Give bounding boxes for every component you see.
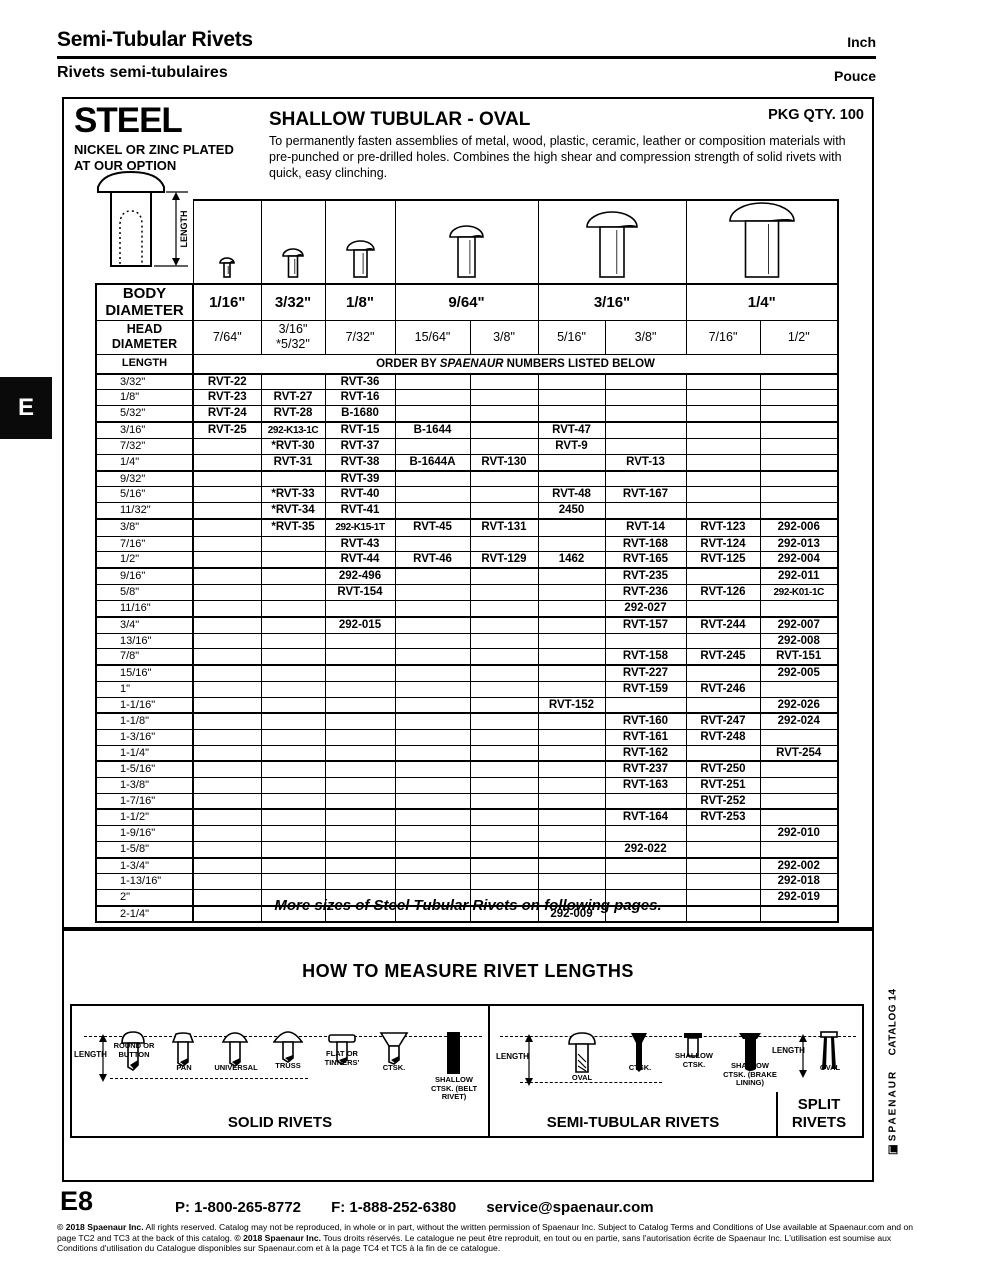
part-number-cell: RVT-25 [193,422,261,439]
order-note-prefix: ORDER BY [376,358,440,370]
part-number-cell: 292-006 [760,519,838,536]
empty-cell [470,487,538,503]
part-number-cell: 292-013 [760,536,838,552]
part-number-cell: RVT-31 [261,455,325,471]
rivet-pictogram-cell [325,200,395,284]
rivet-pictogram-cell [686,200,838,284]
empty-cell [760,374,838,390]
empty-cell [760,729,838,745]
rivet-pictogram-cell [193,200,261,284]
empty-cell [538,568,605,584]
empty-cell [193,471,261,487]
empty-cell [325,874,395,890]
head-diameter-value: 3/8" [605,320,686,354]
part-number-cell: 292-010 [760,826,838,842]
empty-cell [470,841,538,857]
length-cell: 7/8" [96,649,193,665]
empty-cell [605,793,686,809]
part-number-cell: *RVT-35 [261,519,325,536]
empty-cell [686,601,760,617]
empty-cell [605,471,686,487]
order-note: ORDER BY SPAENAUR NUMBERS LISTED BELOW [193,354,838,374]
length-cell: 1-5/16" [96,761,193,777]
part-number-cell: RVT-27 [261,390,325,406]
empty-cell [325,858,395,874]
body-diameter-row: BODY DIAMETER1/16"3/32"1/8"9/64"3/16"1/4… [96,284,838,320]
empty-cell [261,793,325,809]
part-number-cell: 292-002 [760,858,838,874]
part-number-cell: 292-K15-1T [325,519,395,536]
empty-cell [605,374,686,390]
package-qty: PKG QTY. 100 [768,107,864,123]
empty-cell [261,633,325,649]
table-row: 1"RVT-159RVT-246 [96,681,838,697]
empty-cell [193,681,261,697]
length-cell: 1-3/8" [96,778,193,794]
length-cell: 15/16" [96,665,193,681]
length-cell: 1-13/16" [96,874,193,890]
empty-cell [470,390,538,406]
empty-cell [760,390,838,406]
table-row: 11/16"292-027 [96,601,838,617]
empty-cell [193,439,261,455]
part-number-cell: RVT-237 [605,761,686,777]
split-rivets-caption: SPLIT RIVETS [776,1096,862,1132]
part-number-cell: RVT-251 [686,778,760,794]
empty-cell [193,778,261,794]
section-tab-e: E [0,377,52,439]
empty-cell [538,858,605,874]
empty-cell [470,439,538,455]
empty-cell [193,519,261,536]
empty-cell [538,471,605,487]
empty-cell [538,536,605,552]
rivet-type-label: OVAL [554,1074,610,1083]
part-number-cell: 292-022 [605,841,686,857]
part-number-cell: RVT-160 [605,713,686,729]
length-cell: 1-7/16" [96,793,193,809]
table-row: 1-1/4"RVT-162RVT-254 [96,745,838,761]
empty-cell [193,503,261,519]
body-diameter-value: 1/8" [325,284,395,320]
empty-cell [470,826,538,842]
empty-cell [470,809,538,825]
empty-cell [193,552,261,568]
empty-cell [261,713,325,729]
empty-cell [605,439,686,455]
empty-cell [261,552,325,568]
catalog-page: Semi-Tubular Rivets Inch Rivets semi-tub… [0,0,989,1280]
part-number-cell: B-1644A [395,455,470,471]
part-number-cell: RVT-46 [395,552,470,568]
part-number-cell: RVT-252 [686,793,760,809]
head-diameter-value: 3/16" *5/32" [261,320,325,354]
head-diameter-label: HEAD DIAMETER [96,320,193,354]
empty-cell [538,681,605,697]
empty-cell [261,584,325,601]
rivet-pictogram [728,201,796,280]
table-row: 1/2"RVT-44RVT-46RVT-1291462RVT-165RVT-12… [96,552,838,568]
body-diameter-value: 1/4" [686,284,838,320]
empty-cell [325,778,395,794]
semi-tubular-caption: SEMI-TUBULAR RIVETS [490,1114,776,1131]
length-cell: 1-1/8" [96,713,193,729]
belt-rivet-icon [439,1030,469,1076]
table-row: 1-1/2"RVT-164RVT-253 [96,809,838,825]
rivet-type-label: PAN [156,1064,212,1073]
empty-cell [538,405,605,421]
empty-cell [686,374,760,390]
empty-cell [193,568,261,584]
empty-cell [470,778,538,794]
oval-tubular-rivet-icon [567,1030,597,1076]
empty-cell [470,858,538,874]
part-number-cell: RVT-37 [325,439,395,455]
empty-cell [760,455,838,471]
table-row: 3/32"RVT-22RVT-36 [96,374,838,390]
length-cell: 5/8" [96,584,193,601]
part-number-cell: RVT-39 [325,471,395,487]
empty-cell [605,503,686,519]
empty-cell [686,439,760,455]
empty-cell [538,374,605,390]
table-row: 1-1/16"RVT-152292-026 [96,697,838,713]
length-cell: 11/16" [96,601,193,617]
empty-cell [261,745,325,761]
length-cell: 1-5/8" [96,841,193,857]
empty-cell [605,874,686,890]
table-row: 1-3/4"292-002 [96,858,838,874]
empty-cell [760,503,838,519]
empty-cell [325,809,395,825]
empty-cell [193,617,261,633]
empty-cell [395,503,470,519]
empty-cell [470,761,538,777]
table-row: 5/32"RVT-24RVT-28B-1680 [96,405,838,421]
unit-label-fr: Pouce [834,68,876,84]
part-number-cell: RVT-250 [686,761,760,777]
table-row: 1-9/16"292-010 [96,826,838,842]
part-number-cell: RVT-157 [605,617,686,633]
empty-cell [395,617,470,633]
spaenaur-logo-icon [889,1145,898,1154]
empty-cell [686,697,760,713]
empty-cell [605,390,686,406]
empty-cell [605,633,686,649]
part-number-cell: RVT-41 [325,503,395,519]
part-number-cell: RVT-131 [470,519,538,536]
rivet-type-label: SHALLOW CTSK. [666,1052,722,1069]
empty-cell [395,681,470,697]
head-diameter-row: HEAD DIAMETER7/64"3/16" *5/32"7/32"15/64… [96,320,838,354]
part-number-cell: RVT-159 [605,681,686,697]
empty-cell [470,713,538,729]
product-style-heading: SHALLOW TUBULAR - OVAL [269,109,530,131]
empty-cell [470,503,538,519]
empty-cell [538,761,605,777]
order-note-brand: SPAENAUR [440,358,504,370]
product-section-box: STEEL NICKEL OR ZINC PLATED AT OUR OPTIO… [62,97,874,1182]
empty-cell [395,390,470,406]
table-row: 3/8"*RVT-35292-K15-1TRVT-45RVT-131RVT-14… [96,519,838,536]
empty-cell [261,471,325,487]
part-number-cell: RVT-23 [193,390,261,406]
part-number-cell: RVT-245 [686,649,760,665]
empty-cell [760,405,838,421]
empty-cell [193,584,261,601]
empty-cell [395,697,470,713]
part-number-cell: 292-K01-1C [760,584,838,601]
length-cell: 3/4" [96,617,193,633]
base-reference-line [110,1078,308,1079]
empty-cell [395,439,470,455]
table-row: 7/8"RVT-158RVT-245RVT-151 [96,649,838,665]
empty-cell [538,665,605,681]
empty-cell [395,568,470,584]
empty-cell [261,617,325,633]
empty-cell [325,665,395,681]
part-number-cell: 292-496 [325,568,395,584]
body-diameter-value: 9/64" [395,284,538,320]
page-title-fr: Rivets semi-tubulaires [57,64,228,82]
empty-cell [538,455,605,471]
empty-cell [395,841,470,857]
body-diameter-label: BODY DIAMETER [96,284,193,320]
rivet-pictogram-cell [538,200,686,284]
page-title-en: Semi-Tubular Rivets [57,28,253,52]
contact-line: P: 1-800-265-8772 F: 1-888-252-6380 serv… [175,1199,680,1216]
empty-cell [686,826,760,842]
head-diameter-value: 5/16" [538,320,605,354]
empty-cell [760,487,838,503]
empty-cell [193,826,261,842]
table-row: 15/16"RVT-227292-005 [96,665,838,681]
empty-cell [395,649,470,665]
rivet-type-label: UNIVERSAL [208,1064,264,1073]
part-number-cell: RVT-47 [538,422,605,439]
part-number-cell: RVT-235 [605,568,686,584]
body-diameter-value: 3/16" [538,284,686,320]
empty-cell [193,665,261,681]
empty-cell [261,601,325,617]
empty-cell [470,745,538,761]
empty-cell [470,584,538,601]
part-number-cell: RVT-124 [686,536,760,552]
empty-cell [325,729,395,745]
part-number-cell: 292-007 [760,617,838,633]
length-cell: 5/32" [96,405,193,421]
body-diameter-value: 3/32" [261,284,325,320]
body-diameter-value: 1/16" [193,284,261,320]
rivet-type-label: OVAL [802,1064,858,1073]
empty-cell [538,809,605,825]
empty-cell [395,761,470,777]
length-cell: 1" [96,681,193,697]
empty-cell [538,745,605,761]
catalog-edition-vertical: CATALOG 14 [888,989,899,1056]
empty-cell [325,841,395,857]
empty-cell [193,745,261,761]
rivet-pictogram-cell [395,200,538,284]
empty-cell [193,455,261,471]
part-number-cell: RVT-130 [470,455,538,471]
part-number-cell: 2450 [538,503,605,519]
empty-cell [395,374,470,390]
empty-cell [470,793,538,809]
unit-label-en: Inch [847,34,876,50]
empty-cell [193,601,261,617]
rivet-type-label: FLAT OR TINNERS' [314,1050,370,1067]
part-number-cell: RVT-36 [325,374,395,390]
empty-cell [470,681,538,697]
part-number-cell: RVT-45 [395,519,470,536]
phone-number: P: 1-800-265-8772 [175,1199,301,1216]
length-cell: 1/8" [96,390,193,406]
empty-cell [325,633,395,649]
head-diameter-value: 1/2" [760,320,838,354]
rivet-pictogram-row [96,200,838,284]
empty-cell [325,761,395,777]
empty-cell [538,778,605,794]
part-number-cell: RVT-126 [686,584,760,601]
part-number-cell: 1462 [538,552,605,568]
part-number-cell: RVT-13 [605,455,686,471]
part-number-cell: RVT-161 [605,729,686,745]
part-number-cell: RVT-247 [686,713,760,729]
part-number-cell: RVT-129 [470,552,538,568]
empty-cell [605,405,686,421]
empty-cell [395,601,470,617]
empty-cell [605,858,686,874]
part-number-cell: 292-026 [760,697,838,713]
empty-cell [261,568,325,584]
table-row: 9/32"RVT-39 [96,471,838,487]
length-cell: 7/16" [96,536,193,552]
part-number-cell: 292-K13-1C [261,422,325,439]
empty-cell [193,633,261,649]
empty-cell [325,697,395,713]
rivet-pictogram [448,224,485,280]
table-row: 1-3/8"RVT-163RVT-251 [96,778,838,794]
part-number-cell: RVT-244 [686,617,760,633]
empty-cell [686,503,760,519]
material-heading: STEEL [74,101,182,141]
empty-cell [686,858,760,874]
part-number-cell: B-1680 [325,405,395,421]
empty-cell [470,405,538,421]
empty-cell [470,471,538,487]
empty-cell [538,841,605,857]
part-number-cell: RVT-125 [686,552,760,568]
part-number-cell: RVT-43 [325,536,395,552]
table-row: 3/4"292-015RVT-157RVT-244292-007 [96,617,838,633]
length-cell: 1-3/16" [96,729,193,745]
empty-cell [395,745,470,761]
empty-cell [760,471,838,487]
header-rule [57,56,876,59]
empty-cell [261,649,325,665]
empty-cell [193,793,261,809]
empty-cell [193,713,261,729]
part-number-cell: RVT-24 [193,405,261,421]
rivet-type-label: TRUSS [260,1062,316,1071]
empty-cell [261,809,325,825]
part-number-cell: 292-004 [760,552,838,568]
empty-cell [686,745,760,761]
length-cell: 1-1/2" [96,809,193,825]
table-row: 1/8"RVT-23RVT-27RVT-16 [96,390,838,406]
part-number-cell: 292-018 [760,874,838,890]
empty-cell [686,841,760,857]
empty-cell [760,422,838,439]
empty-cell [325,649,395,665]
length-cell: 7/32" [96,439,193,455]
table-row: 7/32"*RVT-30RVT-37RVT-9 [96,439,838,455]
rivet-pictogram [585,210,639,280]
empty-cell [470,568,538,584]
table-corner-blank [96,200,193,284]
length-cell: 13/16" [96,633,193,649]
part-number-cell: RVT-253 [686,809,760,825]
rivet-type-label: SHALLOW CTSK. (BELT RIVET) [426,1076,482,1102]
empty-cell [261,665,325,681]
email-address: service@spaenaur.com [486,1199,653,1216]
empty-cell [325,681,395,697]
head-diameter-value: 3/8" [470,320,538,354]
copyright-fr: © 2018 Spaenaur Inc. [234,1233,321,1243]
empty-cell [605,697,686,713]
empty-cell [470,649,538,665]
empty-cell [605,422,686,439]
empty-cell [395,793,470,809]
empty-cell [261,826,325,842]
empty-cell [261,536,325,552]
empty-cell [686,874,760,890]
rivet-pictogram [281,247,305,280]
empty-cell [470,633,538,649]
empty-cell [193,487,261,503]
empty-cell [261,729,325,745]
empty-cell [538,793,605,809]
length-arrow-icon [522,1034,536,1086]
empty-cell [261,874,325,890]
part-number-cell: RVT-246 [686,681,760,697]
fax-number: F: 1-888-252-6380 [331,1199,456,1216]
length-cell: 3/8" [96,519,193,536]
empty-cell [686,633,760,649]
empty-cell [538,729,605,745]
empty-cell [538,601,605,617]
empty-cell [470,536,538,552]
table-row: 3/16"RVT-25292-K13-1CRVT-15B-1644RVT-47 [96,422,838,439]
section-divider [64,927,872,931]
part-number-cell: RVT-164 [605,809,686,825]
empty-cell [193,761,261,777]
empty-cell [193,841,261,857]
empty-cell [470,729,538,745]
solid-rivets-caption: SOLID RIVETS [72,1114,488,1131]
empty-cell [760,681,838,697]
part-number-cell: RVT-44 [325,552,395,568]
part-number-cell: 292-005 [760,665,838,681]
part-number-cell: RVT-22 [193,374,261,390]
table-row: 1-5/8"292-022 [96,841,838,857]
order-note-suffix: NUMBERS LISTED BELOW [503,358,654,370]
length-column-label: LENGTH [96,354,193,374]
part-number-cell: RVT-236 [605,584,686,601]
empty-cell [261,778,325,794]
rivet-type-label: SHALLOW CTSK. (BRAKE LINING) [722,1062,778,1088]
